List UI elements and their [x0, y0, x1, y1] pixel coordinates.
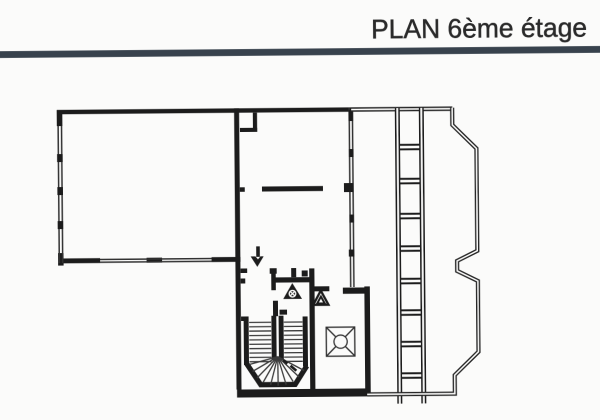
svg-text:PLAN 6ème étage: PLAN 6ème étage — [371, 13, 587, 45]
